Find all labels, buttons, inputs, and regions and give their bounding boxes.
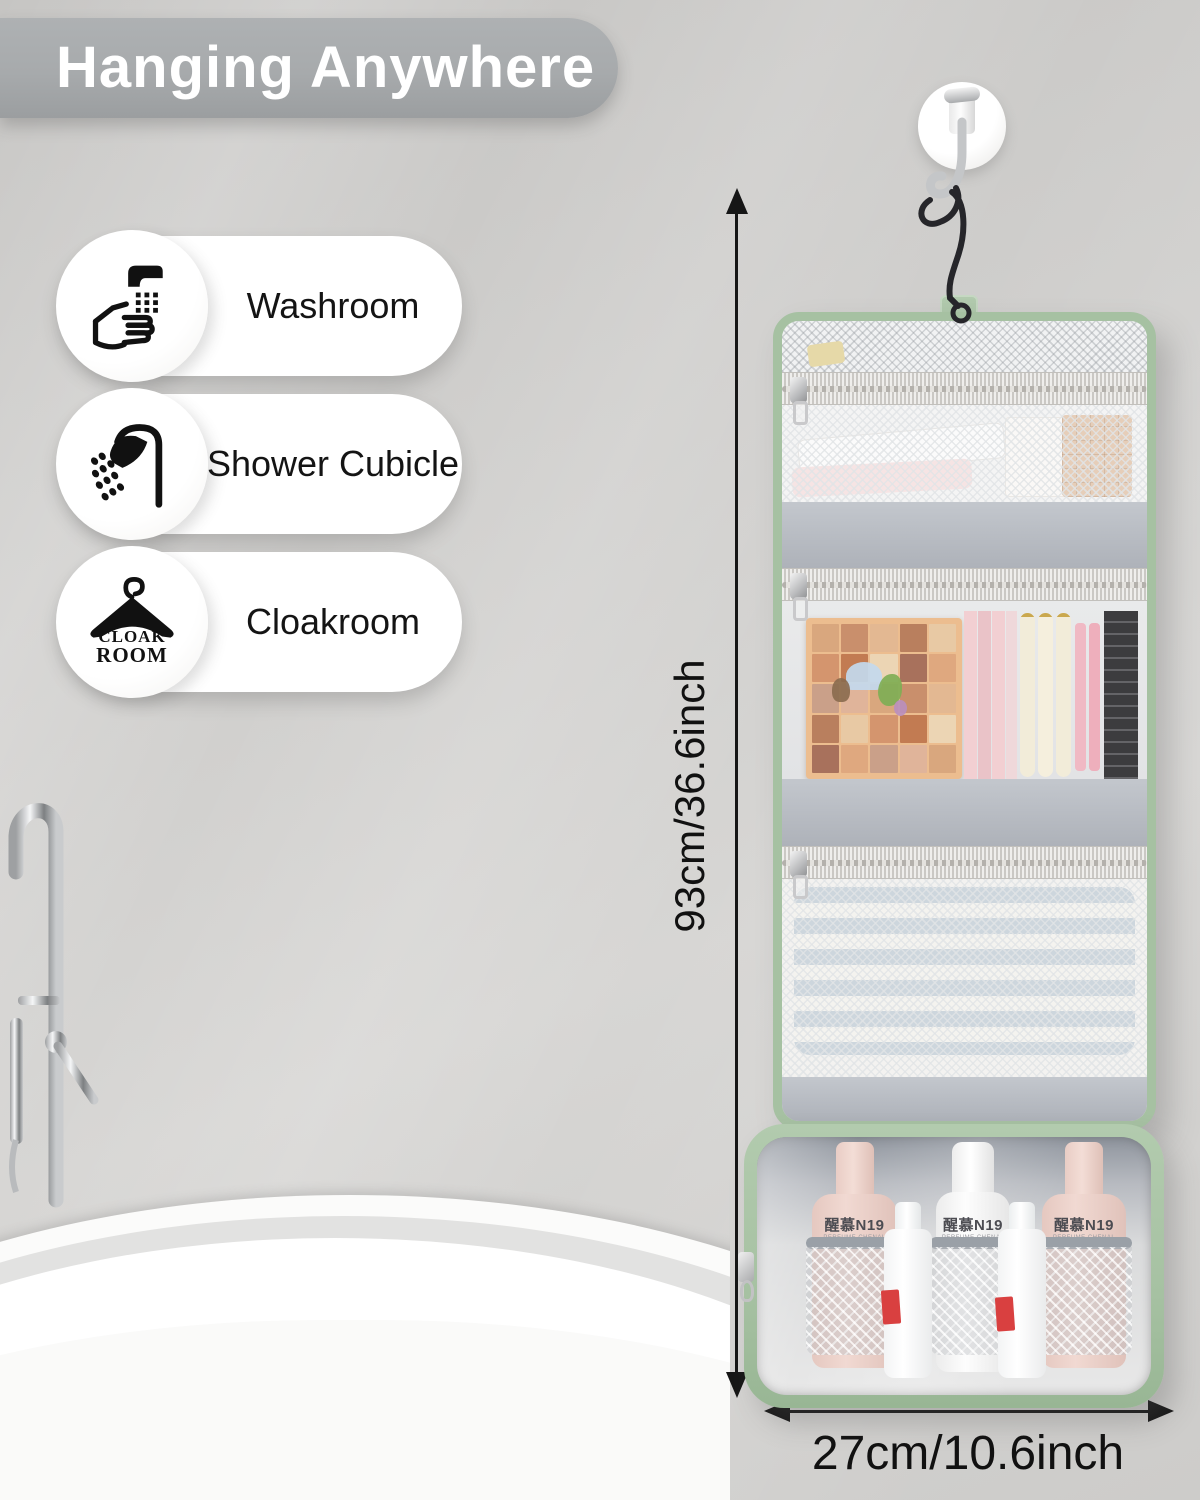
palette-shade [900, 654, 927, 682]
rolled-brush [1020, 613, 1035, 777]
bathtub [0, 1080, 730, 1500]
width-dimension-line [788, 1410, 1150, 1413]
rolled-brush [1056, 613, 1071, 777]
zipper-pull-3 [790, 851, 807, 877]
bag-divider [782, 779, 1147, 846]
black-cosmetics [1104, 611, 1138, 779]
clear-pocket [782, 601, 1147, 779]
height-dimension-line [735, 205, 738, 1385]
badge-label: Shower Cubicle [216, 394, 450, 534]
metal-hook [930, 122, 962, 194]
zipper-tape-2 [782, 568, 1147, 601]
palette-shade [929, 654, 956, 682]
zipper-pull-1 [790, 377, 807, 403]
palette-shade [900, 624, 927, 652]
cosmetic-tube [791, 458, 972, 497]
mesh-pocket-bottom [782, 879, 1147, 1077]
washroom-icon [56, 230, 208, 382]
cosmetic-box [1005, 417, 1067, 497]
palette-shade [812, 684, 839, 712]
spray-cap [1009, 1202, 1035, 1232]
spray-cap [895, 1202, 921, 1232]
palette-shade [870, 654, 897, 682]
zipper-tape-3 [782, 846, 1147, 879]
palette-shade [929, 745, 956, 773]
palette-shade [812, 654, 839, 682]
spray-label [995, 1296, 1015, 1331]
width-dimension-label: 27cm/10.6inch [770, 1426, 1166, 1481]
spray-label [881, 1289, 901, 1324]
bathtub-front [0, 1320, 730, 1500]
width-arrow-right [1148, 1400, 1174, 1422]
zipper-pull-2 [790, 573, 807, 599]
palette-shade [870, 715, 897, 743]
badge-label: Washroom [216, 236, 450, 376]
zipper-tape-1 [782, 372, 1147, 405]
rolled-brush [1038, 613, 1053, 777]
mesh-pocket-top [782, 405, 1147, 502]
palette-shade [841, 654, 868, 682]
cloakroom-icon: CLOAK ROOM [56, 546, 208, 698]
bottom-compartment: 醒慕N19 PERFUME CHENAL 醒慕N19 PERFUME CHENA… [744, 1124, 1164, 1408]
compartment-zipper-pull [738, 1252, 754, 1282]
palette-shade [929, 684, 956, 712]
palette-shade [929, 624, 956, 652]
toiletry-bag-panel [773, 312, 1156, 1130]
height-dimension-label: 93cm/36.6inch [667, 636, 713, 956]
palette-shade [929, 715, 956, 743]
palette-shade [841, 715, 868, 743]
product-infographic: Hanging Anywhere Washroo [0, 0, 1200, 1500]
feature-badge-cloakroom: CLOAK ROOM Cloakroom [58, 552, 462, 692]
bottle-brand: 醒慕N19 [1042, 1214, 1126, 1235]
palette-shade [841, 745, 868, 773]
spray-bottle [998, 1202, 1046, 1378]
bag-bottom-strip [782, 1077, 1147, 1121]
makeup-brush [992, 611, 1005, 779]
palette-grid [812, 624, 956, 773]
badge-label: Cloakroom [216, 552, 450, 692]
striped-towel [794, 887, 1135, 1055]
bottle-cap [1065, 1142, 1103, 1200]
shower-icon [56, 388, 208, 540]
cosmetic-tube [797, 422, 1006, 476]
palette-shade [900, 715, 927, 743]
palette-shade [870, 624, 897, 652]
bottle-cap [952, 1142, 994, 1198]
palette-shade [870, 684, 897, 712]
makeup-brush [964, 611, 977, 779]
feature-badge-washroom: Washroom [58, 236, 462, 376]
swivel-hook [921, 188, 963, 306]
title-banner: Hanging Anywhere [0, 18, 618, 118]
pink-pencil [1089, 623, 1100, 771]
eyeshadow-palette [806, 618, 962, 779]
compartment-window: 醒慕N19 PERFUME CHENAL 醒慕N19 PERFUME CHENA… [757, 1137, 1151, 1395]
spray-bottle [884, 1202, 932, 1378]
bottle-mesh-pocket [1036, 1237, 1132, 1355]
makeup-brush [978, 611, 991, 779]
palette-shade [870, 745, 897, 773]
bag-divider [782, 502, 1147, 568]
cloakroom-icon-text: CLOAK ROOM [56, 628, 208, 666]
pocket-item [807, 341, 846, 368]
palette-shade [900, 745, 927, 773]
palette-shade [812, 745, 839, 773]
pink-pencil [1075, 623, 1086, 771]
page-title: Hanging Anywhere [0, 18, 618, 118]
palette-shade [812, 624, 839, 652]
makeup-brush [1006, 611, 1017, 779]
palette-shade [841, 624, 868, 652]
palette-shade [812, 715, 839, 743]
hanging-hooks [900, 80, 1040, 340]
feature-badge-shower: Shower Cubicle [58, 394, 462, 534]
bottle-cap [836, 1142, 874, 1200]
makeup-compact [1062, 415, 1132, 497]
swivel-hook-ring [953, 305, 969, 321]
palette-shade [841, 684, 868, 712]
palette-shade [900, 684, 927, 712]
